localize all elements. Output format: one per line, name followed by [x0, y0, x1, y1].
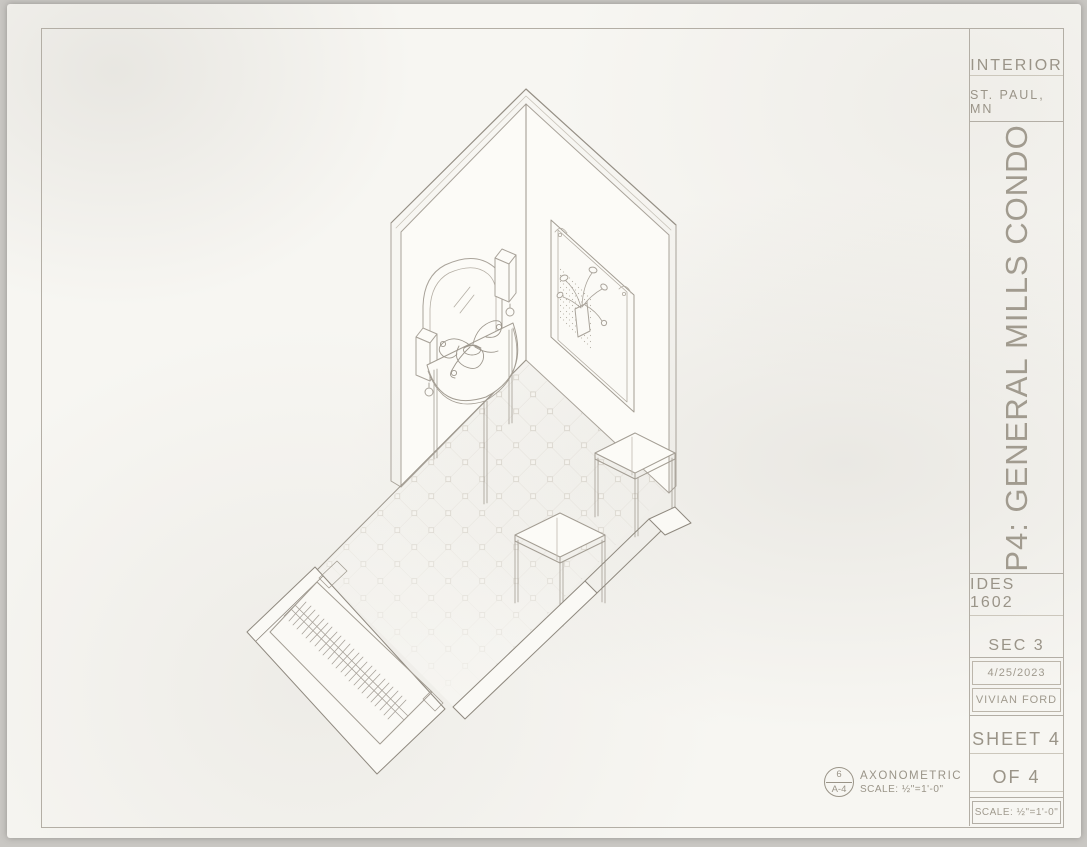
project-location-label: ST. PAUL, MN — [970, 76, 1063, 116]
title-block: INTERIOR ST. PAUL, MN P4: GENERAL MILLS … — [969, 28, 1063, 826]
view-scale-label: SCALE: ½"=1'-0" — [860, 784, 962, 795]
course-label: IDES 1602 — [970, 574, 1063, 616]
title-block-project-title: P4: GENERAL MILLS CONDO — [970, 122, 1063, 574]
sheet-of-label: OF 4 — [970, 754, 1063, 792]
section-label: SEC 3 — [970, 616, 1063, 658]
view-callout: 6 A-4 AXONOMETRIC SCALE: ½"=1'-0" — [824, 767, 962, 797]
view-name-label: AXONOMETRIC — [860, 770, 962, 782]
detail-number: 6 — [836, 768, 841, 782]
title-block-scale: SCALE: ½"=1'-0" — [970, 798, 1063, 826]
date-label: 4/25/2023 — [972, 661, 1061, 685]
sheet-scale-label: SCALE: ½"=1'-0" — [972, 801, 1061, 824]
title-block-sheet-number: SHEET 4 OF 4 — [970, 716, 1063, 798]
sheet-number-label: SHEET 4 — [970, 716, 1063, 754]
project-type-label: INTERIOR — [970, 36, 1063, 76]
author-label: VIVIAN FORD — [972, 688, 1061, 712]
title-block-meta: 4/25/2023 VIVIAN FORD — [970, 658, 1063, 716]
title-block-project-info: INTERIOR ST. PAUL, MN — [970, 28, 1063, 122]
project-title-vertical-text: P4: GENERAL MILLS CONDO — [999, 124, 1035, 571]
detail-callout-circle: 6 A-4 — [824, 767, 854, 797]
view-callout-text: AXONOMETRIC SCALE: ½"=1'-0" — [860, 767, 962, 797]
detail-sheet-reference: A-4 — [832, 783, 847, 797]
title-block-course-info: IDES 1602 SEC 3 — [970, 574, 1063, 658]
axonometric-drawing — [7, 4, 1087, 847]
paper-sheet: INTERIOR ST. PAUL, MN P4: GENERAL MILLS … — [7, 4, 1081, 838]
